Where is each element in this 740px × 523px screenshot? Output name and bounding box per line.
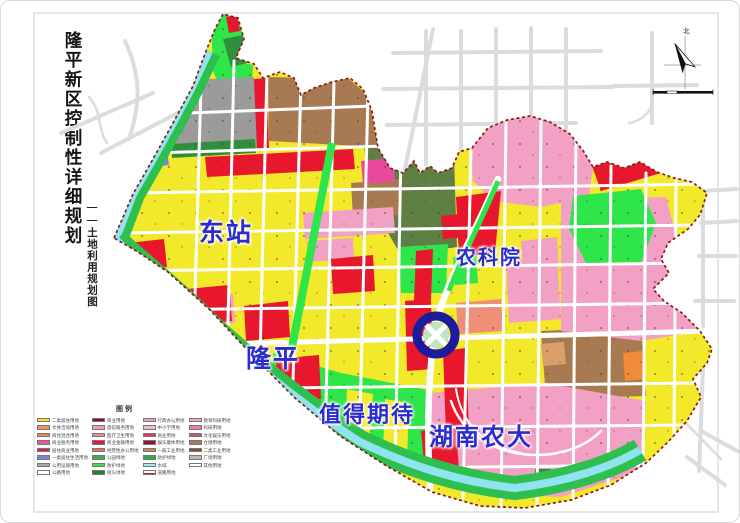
- legend-entry-label: 行政办公用地: [158, 418, 185, 423]
- legend-swatch: [143, 433, 156, 438]
- legend-column: 行政办公用地中小学用地商业用地娱乐康体用地一般工业用地防护绿地水域道路用地: [143, 417, 185, 476]
- legend-swatch: [189, 463, 202, 468]
- scale-bar: [653, 89, 713, 95]
- legend-swatch: [143, 425, 156, 430]
- legend-entry-label: 仓储用地: [204, 440, 222, 445]
- legend-swatch: [189, 440, 202, 445]
- legend-entry-label: 医疗卫生用地: [107, 433, 134, 438]
- legend-entry-label: 水域: [158, 463, 167, 468]
- map-region-label: 东站: [199, 213, 253, 249]
- legend-swatch: [143, 463, 156, 468]
- legend-entry: 广场用地: [189, 455, 231, 461]
- legend-swatch: [189, 425, 202, 430]
- compass-north-label: 北: [683, 27, 690, 35]
- legend-swatch: [189, 433, 202, 438]
- legend-swatch: [143, 470, 156, 475]
- legend-entry: 旅馆服务用地: [92, 425, 139, 431]
- legend-entry: 二类居住用地: [37, 417, 88, 423]
- legend-entry-label: 一般工业用地: [158, 448, 185, 453]
- legend-entry: 一般工业用地: [143, 447, 185, 453]
- legend-entry-label: 商业金融用地: [107, 440, 134, 445]
- legend-entry-label: 科研用地: [204, 425, 222, 430]
- legend-entry: 公路用地: [37, 470, 88, 476]
- legend-entry-label: 公路用地: [52, 470, 70, 475]
- legend-entry: 公园绿地: [92, 455, 139, 461]
- legend-entry-label: 公用设施用地: [52, 463, 79, 468]
- legend-entry: 水域: [143, 462, 185, 468]
- legend-entry-label: 商业用地: [158, 433, 176, 438]
- legend-entry: 文体活动用地: [37, 425, 88, 431]
- legend-swatch: [92, 448, 105, 453]
- legend-swatch: [37, 433, 50, 438]
- legend-entry: 科研用地: [189, 425, 231, 431]
- legend-column: 商业用地旅馆服务用地医疗卫生用地商业金融用地经营性办公用地公园绿地防护绿地街头绿…: [92, 417, 139, 476]
- legend-entry: 商业用地: [92, 417, 139, 423]
- legend-swatch: [37, 463, 50, 468]
- legend-entry-label: 商业用地: [107, 418, 125, 423]
- legend-entry-label: 居住商业用地: [52, 448, 79, 453]
- legend-entry-label: 商住混合用地: [52, 433, 79, 438]
- legend-entry: 商业金融用地: [92, 440, 139, 446]
- legend-column: 二类居住用地文体活动用地商住混合用地商业服务用地居住商业用地一类居住生活用地公用…: [37, 417, 88, 476]
- legend-swatch: [92, 425, 105, 430]
- legend-swatch: [37, 425, 50, 430]
- legend-entry: 商业用地: [143, 432, 185, 438]
- legend-swatch: [143, 440, 156, 445]
- map-region-label: 农科院: [456, 241, 522, 270]
- legend-swatch: [143, 448, 156, 453]
- legend-swatch: [189, 448, 202, 453]
- legend-entry-label: 广场用地: [204, 455, 222, 460]
- legend-entry: 商住混合用地: [37, 432, 88, 438]
- legend-entry-label: 经营性办公用地: [107, 448, 139, 453]
- legend-entry: 仓储用地: [189, 440, 231, 446]
- legend-swatch: [143, 455, 156, 460]
- map-region-label: 值得期待: [319, 397, 415, 429]
- legend-entry: 医疗卫生用地: [92, 432, 139, 438]
- legend-entry: 经营性办公用地: [92, 447, 139, 453]
- legend-entry: 防护绿地: [92, 462, 139, 468]
- compass-icon: 北: [664, 27, 701, 89]
- legend-entry: 防护绿地: [143, 455, 185, 461]
- legend-entry-label: 道路用地: [158, 470, 176, 475]
- legend-entry-label: 文化娱乐用地: [204, 433, 231, 438]
- legend-entry-label: 防护绿地: [158, 455, 176, 460]
- legend-columns: 二类居住用地文体活动用地商住混合用地商业服务用地居住商业用地一类居住生活用地公用…: [37, 417, 255, 476]
- legend-title: 图例: [95, 404, 155, 414]
- legend-entry-label: 娱乐康体用地: [158, 440, 185, 445]
- legend-entry-label: 二类工业用地: [204, 448, 231, 453]
- legend: 图例 二类居住用地文体活动用地商住混合用地商业服务用地居住商业用地一类居住生活用…: [37, 404, 255, 476]
- legend-entry: 其他用地: [189, 462, 231, 468]
- legend-swatch: [37, 448, 50, 453]
- legend-entry: 二类工业用地: [189, 447, 231, 453]
- legend-entry-label: 防护绿地: [107, 463, 125, 468]
- legend-swatch: [189, 418, 202, 423]
- planning-map-sheet: 隆平新区控制性详细规划 ——土地利用规划图: [0, 0, 740, 523]
- legend-swatch: [92, 455, 105, 460]
- legend-entry-label: 一类居住生活用地: [52, 455, 88, 460]
- legend-entry-label: 二类居住用地: [52, 418, 79, 423]
- legend-entry: 文化娱乐用地: [189, 432, 231, 438]
- legend-entry-label: 商业服务用地: [52, 440, 79, 445]
- legend-entry-label: 旅馆服务用地: [107, 425, 134, 430]
- legend-swatch: [92, 418, 105, 423]
- legend-swatch: [143, 418, 156, 423]
- legend-entry: 中小学用地: [143, 425, 185, 431]
- legend-entry-label: 中小学用地: [158, 425, 181, 430]
- legend-swatch: [37, 455, 50, 460]
- legend-swatch: [92, 440, 105, 445]
- legend-entry: 公用设施用地: [37, 462, 88, 468]
- legend-entry-label: 其他用地: [204, 463, 222, 468]
- legend-entry: 教育科研用地: [189, 417, 231, 423]
- legend-entry-label: 教育科研用地: [204, 418, 231, 423]
- legend-entry: 娱乐康体用地: [143, 440, 185, 446]
- legend-swatch: [37, 418, 50, 423]
- legend-entry: 道路用地: [143, 470, 185, 476]
- legend-swatch: [37, 440, 50, 445]
- legend-entry: 一类居住生活用地: [37, 455, 88, 461]
- map-region-label: 湖南农大: [429, 417, 533, 452]
- legend-entry-label: 街头绿地: [107, 470, 125, 475]
- legend-entry: 商业服务用地: [37, 440, 88, 446]
- legend-column: 教育科研用地科研用地文化娱乐用地仓储用地二类工业用地广场用地其他用地: [189, 417, 231, 476]
- legend-entry: 居住商业用地: [37, 447, 88, 453]
- map-region-label: 隆平: [246, 339, 300, 375]
- legend-swatch: [92, 433, 105, 438]
- legend-swatch: [37, 470, 50, 475]
- legend-swatch: [92, 470, 105, 475]
- legend-swatch: [189, 455, 202, 460]
- legend-swatch: [92, 463, 105, 468]
- legend-entry-label: 文体活动用地: [52, 425, 79, 430]
- legend-entry: 行政办公用地: [143, 417, 185, 423]
- legend-entry: 街头绿地: [92, 470, 139, 476]
- legend-entry-label: 公园绿地: [107, 455, 125, 460]
